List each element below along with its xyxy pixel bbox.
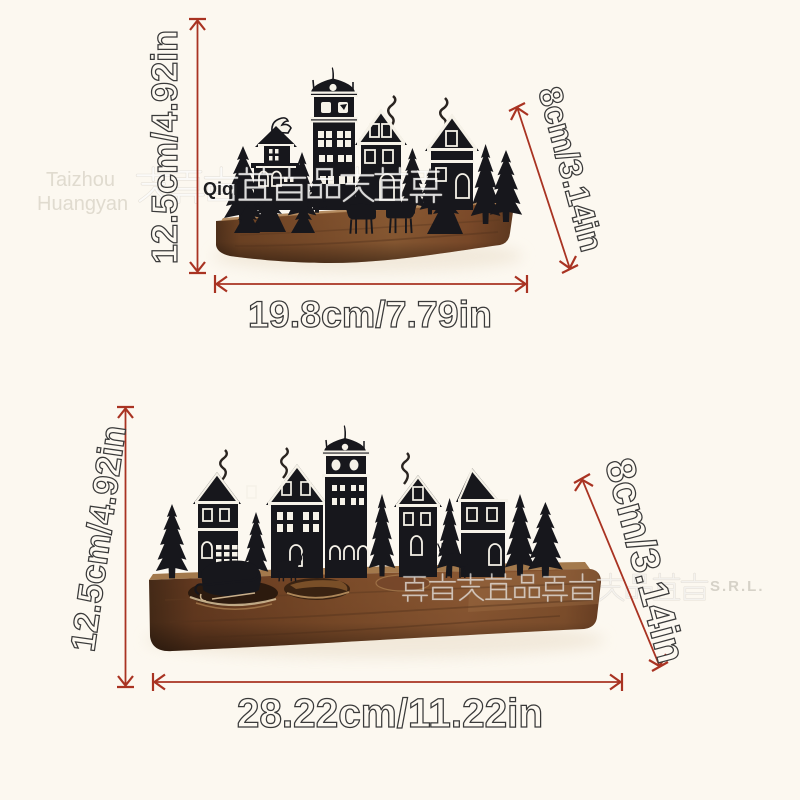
- svg-text:Huangyan: Huangyan: [37, 193, 128, 215]
- svg-text:S.R.L.: S.R.L.: [710, 578, 765, 595]
- svg-text:19.8cm/7.79in: 19.8cm/7.79in: [248, 293, 492, 335]
- svg-text:Qiqi: Qiqi: [203, 179, 238, 199]
- svg-text:28.22cm/11.22in: 28.22cm/11.22in: [237, 690, 543, 736]
- svg-text:Taizhou: Taizhou: [46, 169, 115, 191]
- svg-text:12.5cm/4.92in: 12.5cm/4.92in: [144, 30, 185, 264]
